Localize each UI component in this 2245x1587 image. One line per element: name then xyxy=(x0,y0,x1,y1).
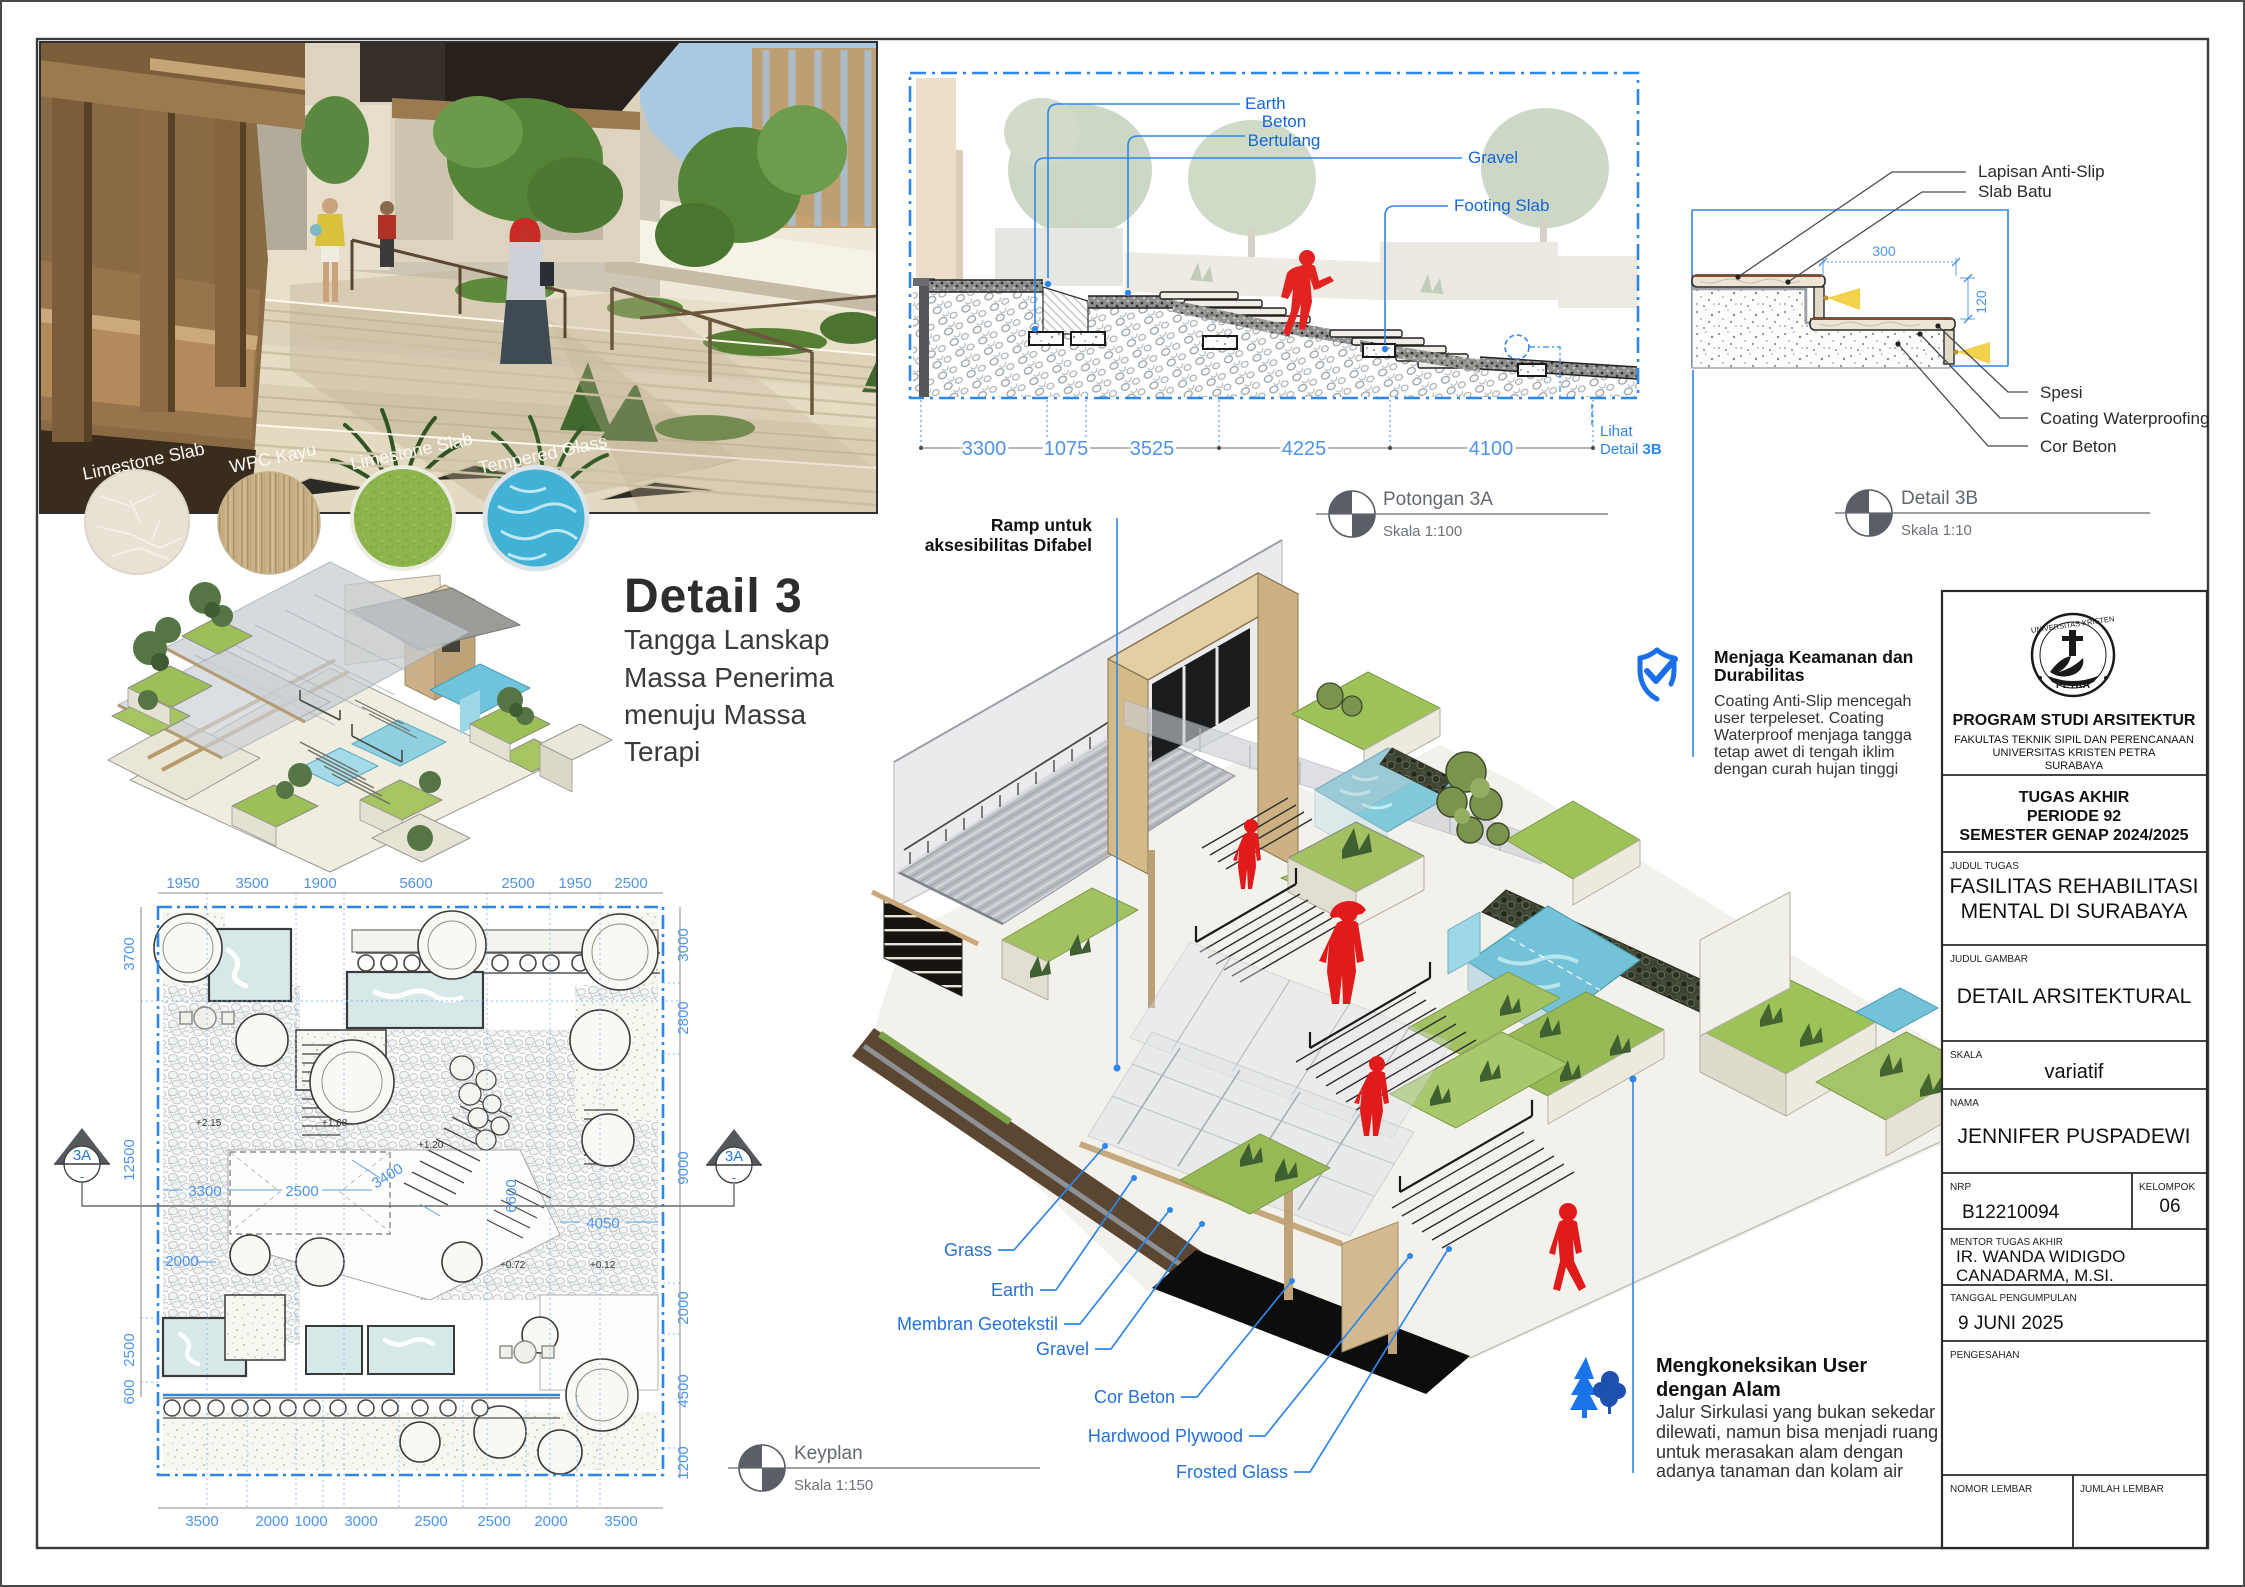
svg-text:4100: 4100 xyxy=(1469,438,1514,460)
svg-text:3A: 3A xyxy=(725,1148,743,1165)
svg-text:Waterproof menjaga tangga: Waterproof menjaga tangga xyxy=(1714,727,1912,744)
svg-text:Detail 3: Detail 3 xyxy=(624,570,803,623)
svg-text:FASILITAS REHABILITASI: FASILITAS REHABILITASI xyxy=(1950,875,2199,898)
svg-text:Coating Waterproofing: Coating Waterproofing xyxy=(2040,409,2209,428)
svg-text:Detail 3B: Detail 3B xyxy=(1901,488,1978,509)
svg-text:SEMESTER GENAP 2024/2025: SEMESTER GENAP 2024/2025 xyxy=(1959,827,2188,844)
svg-text:Hardwood Plywood: Hardwood Plywood xyxy=(1088,1426,1243,1446)
svg-text:NOMOR LEMBAR: NOMOR LEMBAR xyxy=(1950,1484,2032,1495)
svg-text:NRP: NRP xyxy=(1950,1182,1971,1193)
svg-text:IR. WANDA WIDIGDO: IR. WANDA WIDIGDO xyxy=(1956,1247,2125,1266)
svg-text:1200: 1200 xyxy=(675,1446,692,1479)
svg-text:1900: 1900 xyxy=(303,875,336,892)
svg-text:Skala 1:150: Skala 1:150 xyxy=(794,1477,873,1494)
svg-text:4225: 4225 xyxy=(1282,438,1327,460)
svg-text:PENGESAHAN: PENGESAHAN xyxy=(1950,1350,2019,1361)
svg-text:120: 120 xyxy=(1973,290,1989,314)
svg-text:2500: 2500 xyxy=(614,875,647,892)
svg-text:TUGAS AKHIR: TUGAS AKHIR xyxy=(2019,789,2130,806)
svg-text:Potongan 3A: Potongan 3A xyxy=(1383,489,1493,510)
svg-text:3500: 3500 xyxy=(185,1513,218,1530)
svg-text:Terapi: Terapi xyxy=(624,736,700,767)
svg-text:+1.20: +1.20 xyxy=(418,1140,444,1151)
svg-text:1075: 1075 xyxy=(1044,438,1089,460)
svg-text:06: 06 xyxy=(2159,1196,2180,1217)
svg-text:Cor Beton: Cor Beton xyxy=(2040,437,2117,456)
svg-text:SURABAYA: SURABAYA xyxy=(2045,760,2104,772)
svg-text:2000: 2000 xyxy=(255,1513,288,1530)
svg-text:3525: 3525 xyxy=(1130,438,1175,460)
svg-text:3500: 3500 xyxy=(235,875,268,892)
svg-text:2800: 2800 xyxy=(675,1001,692,1034)
svg-text:3000: 3000 xyxy=(344,1513,377,1530)
svg-text:Keyplan: Keyplan xyxy=(794,1443,863,1464)
svg-text:adanya tanaman dan kolam air: adanya tanaman dan kolam air xyxy=(1656,1461,1903,1481)
svg-text:3500: 3500 xyxy=(604,1513,637,1530)
svg-text:PETRA: PETRA xyxy=(2056,680,2090,691)
svg-text:Tangga Lanskap: Tangga Lanskap xyxy=(624,624,830,655)
svg-text:300: 300 xyxy=(1872,243,1896,259)
svg-text:2500: 2500 xyxy=(414,1513,447,1530)
svg-text:Massa Penerima: Massa Penerima xyxy=(624,662,835,693)
svg-text:3300: 3300 xyxy=(188,1183,221,1200)
svg-text:Earth: Earth xyxy=(991,1280,1034,1300)
svg-text:Membran Geotekstil: Membran Geotekstil xyxy=(897,1314,1058,1334)
svg-text:Beton: Beton xyxy=(1262,112,1306,131)
svg-text:2500: 2500 xyxy=(285,1183,318,1200)
svg-text:dengan Alam: dengan Alam xyxy=(1656,1379,1781,1401)
svg-text:2000: 2000 xyxy=(534,1513,567,1530)
svg-text:Cor Beton: Cor Beton xyxy=(1094,1387,1175,1407)
svg-text:Gravel: Gravel xyxy=(1036,1339,1089,1359)
svg-text:12500: 12500 xyxy=(121,1139,138,1181)
svg-text:Grass: Grass xyxy=(944,1240,992,1260)
svg-text:B12210094: B12210094 xyxy=(1962,1202,2060,1223)
svg-text:JUDUL GAMBAR: JUDUL GAMBAR xyxy=(1950,954,2028,965)
svg-text:+2.15: +2.15 xyxy=(196,1118,222,1129)
svg-text:Frosted Glass: Frosted Glass xyxy=(1176,1462,1288,1482)
svg-text:menuju Massa: menuju Massa xyxy=(624,699,807,730)
svg-text:1950: 1950 xyxy=(558,875,591,892)
svg-text:2000: 2000 xyxy=(675,1291,692,1324)
svg-text:Detail 3B: Detail 3B xyxy=(1600,441,1662,458)
svg-text:2500: 2500 xyxy=(121,1333,138,1366)
svg-text:Skala 1:10: Skala 1:10 xyxy=(1901,522,1972,539)
svg-text:+0.72: +0.72 xyxy=(500,1260,526,1271)
svg-text:4500: 4500 xyxy=(675,1374,692,1407)
svg-text:600: 600 xyxy=(121,1379,138,1404)
svg-text:5600: 5600 xyxy=(399,875,432,892)
svg-text:Earth: Earth xyxy=(1245,94,1286,113)
svg-text:tetap awet di tengah iklim: tetap awet di tengah iklim xyxy=(1714,744,1895,761)
svg-text:3A: 3A xyxy=(73,1147,91,1164)
svg-text:+0.12: +0.12 xyxy=(590,1260,616,1271)
svg-text:JUMLAH LEMBAR: JUMLAH LEMBAR xyxy=(2080,1484,2164,1495)
svg-text:3700: 3700 xyxy=(121,937,138,970)
svg-text:2000: 2000 xyxy=(165,1253,198,1270)
svg-text:Gravel: Gravel xyxy=(1468,148,1518,167)
svg-text:Slab Batu: Slab Batu xyxy=(1978,182,2052,201)
svg-text:-: - xyxy=(732,1170,736,1185)
svg-text:MENTAL DI SURABAYA: MENTAL DI SURABAYA xyxy=(1961,900,2188,923)
svg-text:-: - xyxy=(80,1169,84,1184)
svg-text:Durabilitas: Durabilitas xyxy=(1714,665,1805,685)
svg-text:9 JUNI 2025: 9 JUNI 2025 xyxy=(1958,1313,2064,1334)
svg-text:Menjaga Keamanan dan: Menjaga Keamanan dan xyxy=(1714,647,1913,667)
svg-text:aksesibilitas Difabel: aksesibilitas Difabel xyxy=(925,535,1092,555)
svg-text:JENNIFER PUSPADEWI: JENNIFER PUSPADEWI xyxy=(1958,1125,2191,1148)
svg-text:CANADARMA, M.SI.: CANADARMA, M.SI. xyxy=(1956,1266,2114,1285)
svg-text:dilewati, namun bisa menjadi r: dilewati, namun bisa menjadi ruang xyxy=(1656,1422,1938,1442)
svg-text:NAMA: NAMA xyxy=(1950,1098,1979,1109)
svg-text:Skala 1:100: Skala 1:100 xyxy=(1383,523,1462,540)
svg-text:1000: 1000 xyxy=(294,1513,327,1530)
svg-text:DETAIL ARSITEKTURAL: DETAIL ARSITEKTURAL xyxy=(1957,985,2192,1008)
svg-text:KELOMPOK: KELOMPOK xyxy=(2139,1182,2195,1193)
svg-text:SKALA: SKALA xyxy=(1950,1050,1983,1061)
svg-text:3300: 3300 xyxy=(962,438,1007,460)
svg-text:Ramp untuk: Ramp untuk xyxy=(991,515,1092,535)
svg-text:2500: 2500 xyxy=(501,875,534,892)
svg-text:6600: 6600 xyxy=(503,1179,520,1212)
svg-text:Footing Slab: Footing Slab xyxy=(1454,196,1549,215)
svg-text:dengan curah hujan tinggi: dengan curah hujan tinggi xyxy=(1714,761,1898,778)
svg-text:JUDUL TUGAS: JUDUL TUGAS xyxy=(1950,861,2019,872)
svg-text:variatif: variatif xyxy=(2045,1061,2104,1083)
svg-text:3000: 3000 xyxy=(675,928,692,961)
svg-text:Bertulang: Bertulang xyxy=(1248,131,1321,150)
svg-text:Mengkoneksikan User: Mengkoneksikan User xyxy=(1656,1355,1867,1377)
svg-text:untuk merasakan alam dengan: untuk merasakan alam dengan xyxy=(1656,1442,1903,1462)
svg-text:Spesi: Spesi xyxy=(2040,383,2083,402)
svg-text:FAKULTAS TEKNIK SIPIL DAN PERE: FAKULTAS TEKNIK SIPIL DAN PERENCANAAN xyxy=(1954,734,2194,746)
svg-text:Lihat: Lihat xyxy=(1600,423,1633,440)
svg-text:1950: 1950 xyxy=(166,875,199,892)
svg-text:Coating Anti-Slip mencegah: Coating Anti-Slip mencegah xyxy=(1714,693,1911,710)
svg-text:4050: 4050 xyxy=(586,1215,619,1232)
svg-text:Lapisan Anti-Slip: Lapisan Anti-Slip xyxy=(1978,162,2105,181)
svg-text:2500: 2500 xyxy=(477,1513,510,1530)
svg-text:Jalur Sirkulasi yang bukan sek: Jalur Sirkulasi yang bukan sekedar xyxy=(1656,1402,1935,1422)
svg-text:UNIVERSITAS KRISTEN PETRA: UNIVERSITAS KRISTEN PETRA xyxy=(1993,747,2157,759)
svg-text:PROGRAM STUDI ARSITEKTUR: PROGRAM STUDI ARSITEKTUR xyxy=(1953,712,2196,729)
svg-text:9000: 9000 xyxy=(675,1151,692,1184)
svg-text:PERIODE 92: PERIODE 92 xyxy=(2027,808,2121,825)
svg-text:user terpeleset. Coating: user terpeleset. Coating xyxy=(1714,710,1884,727)
svg-text:TANGGAL PENGUMPULAN: TANGGAL PENGUMPULAN xyxy=(1950,1293,2077,1304)
